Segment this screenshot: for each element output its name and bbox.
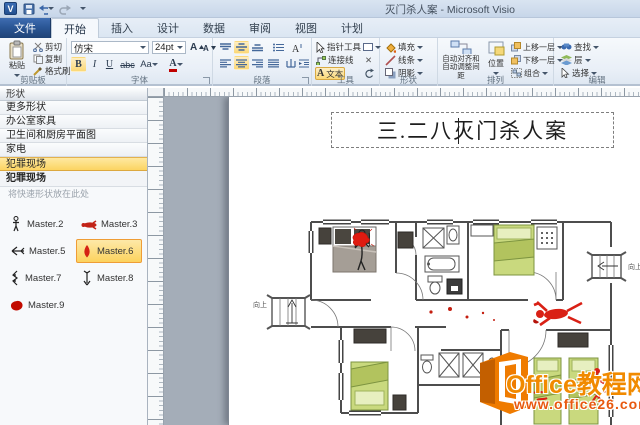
- shrink-font-icon: A: [203, 44, 209, 53]
- stencil-appliances[interactable]: 家电: [0, 143, 147, 157]
- tab-data[interactable]: 数据: [191, 18, 237, 38]
- chevron-down-icon: [80, 7, 86, 13]
- align-right-icon: [252, 59, 263, 68]
- master-7[interactable]: Master.7: [4, 266, 70, 290]
- bold-button[interactable]: B: [71, 57, 86, 72]
- layers-button[interactable]: 层: [560, 54, 592, 66]
- copy-label: 复制: [45, 53, 62, 65]
- connector-tool-label: 连接线: [328, 54, 354, 66]
- master-6[interactable]: Master.6: [76, 239, 142, 263]
- fill-button[interactable]: 填充: [384, 41, 424, 53]
- underline-button[interactable]: U: [103, 57, 116, 72]
- quick-shapes-hint: 将快速形状放在此处: [0, 187, 147, 202]
- master-9[interactable]: Master.9: [4, 293, 70, 317]
- bedroom-topright[interactable]: [471, 225, 557, 275]
- staircase-right[interactable]: 向上: [587, 252, 640, 281]
- send-backward-icon: [511, 55, 521, 65]
- group-shape: 填充 线条 阴影 形状: [380, 38, 438, 86]
- align-top-button[interactable]: [218, 41, 233, 54]
- chevron-down-icon: [593, 46, 599, 52]
- layers-icon: [561, 55, 572, 65]
- save-icon: [23, 3, 35, 15]
- font-family-combo[interactable]: 仿宋: [71, 41, 149, 54]
- fill-label: 填充: [398, 41, 415, 53]
- send-backward-label: 下移一层: [523, 55, 555, 66]
- svg-text:A: A: [292, 44, 300, 53]
- stencil-crime-scene[interactable]: 犯罪现场: [0, 157, 147, 171]
- master-5[interactable]: Master.5: [4, 239, 70, 263]
- bring-forward-label: 上移一层: [523, 42, 555, 53]
- master-label: Master.7: [25, 273, 61, 284]
- cabinet[interactable]: [398, 232, 413, 248]
- tab-file[interactable]: 文件: [0, 18, 51, 38]
- chevron-down-icon: [177, 46, 183, 52]
- chevron-down-icon: [152, 63, 158, 69]
- vertical-ruler[interactable]: [148, 97, 164, 425]
- redo-button[interactable]: [57, 1, 72, 16]
- superscript-button[interactable]: A: [290, 41, 305, 54]
- auto-align-button[interactable]: 自动对齐和 自动调整间距: [439, 40, 483, 80]
- master-8[interactable]: Master.8: [76, 266, 142, 290]
- undo-button[interactable]: [39, 1, 54, 16]
- horizontal-ruler[interactable]: [164, 88, 640, 97]
- arrow-down-icon: [81, 270, 93, 286]
- text-caret: [458, 118, 459, 144]
- window-title: 灭门杀人案 - Microsoft Visio: [330, 0, 570, 18]
- align-center-button[interactable]: [234, 56, 249, 70]
- bring-forward-icon: [511, 42, 521, 52]
- qat-customize-button[interactable]: [75, 1, 90, 16]
- change-case-button[interactable]: Aa: [139, 57, 159, 72]
- copy-icon: [33, 54, 43, 64]
- line-label: 线条: [398, 54, 415, 66]
- justify-button[interactable]: [266, 56, 281, 70]
- line-button[interactable]: 线条: [384, 54, 424, 66]
- staircase-left[interactable]: 向上: [253, 295, 310, 329]
- find-button[interactable]: 查找: [560, 41, 600, 53]
- redo-icon: [58, 3, 71, 15]
- connector-tool-icon: [316, 55, 326, 65]
- strikethrough-button[interactable]: abc: [118, 57, 137, 72]
- floor-plan[interactable]: 向上 向上: [231, 195, 640, 425]
- stool[interactable]: [393, 395, 406, 410]
- cut-label: 剪切: [45, 41, 62, 53]
- paste-button[interactable]: 粘贴: [3, 40, 31, 80]
- tab-view[interactable]: 视图: [283, 18, 329, 38]
- save-button[interactable]: [21, 1, 36, 16]
- cut-button[interactable]: 剪切: [32, 41, 63, 53]
- bathroom-bottom[interactable]: [421, 353, 496, 377]
- drawing-page[interactable]: 三.二八灭门杀人案: [228, 97, 640, 425]
- single-bed-2[interactable]: [569, 358, 598, 424]
- masters-list: Master.2 Master.3 Master.5 Master.6 Mast…: [0, 202, 147, 211]
- align-bottom-icon: [252, 43, 263, 52]
- text-direction-icon: [286, 58, 296, 68]
- shapes-panel-header: 形状: [0, 88, 147, 101]
- master-label: Master.2: [27, 219, 63, 230]
- dresser[interactable]: [354, 329, 386, 343]
- bed-green-bl[interactable]: [351, 362, 388, 410]
- chevron-down-icon: [417, 59, 423, 65]
- font-size-value: 24pt: [155, 42, 174, 53]
- align-right-button[interactable]: [250, 56, 265, 70]
- position-label: 位置: [488, 58, 504, 69]
- text-direction-button[interactable]: [285, 56, 297, 70]
- shape-group-label: 形状: [380, 75, 437, 85]
- master-label: Master.9: [28, 300, 64, 311]
- stencil-section-title: 犯罪现场: [0, 171, 147, 187]
- pointer-tool-button[interactable]: 指针工具: [315, 41, 362, 53]
- position-icon: [487, 40, 505, 56]
- font-family-value: 仿宋: [74, 41, 93, 55]
- copy-button[interactable]: 复制: [32, 53, 63, 65]
- change-case-label: Aa: [140, 59, 152, 70]
- editing-group-label: 编辑: [554, 75, 640, 85]
- toilet[interactable]: [428, 276, 442, 294]
- blood-drop-icon: [81, 244, 93, 259]
- tab-review[interactable]: 审阅: [237, 18, 283, 38]
- master-2[interactable]: Master.2: [4, 212, 70, 236]
- tab-plan[interactable]: 计划: [329, 18, 375, 38]
- pointer-tool-icon: [316, 42, 325, 53]
- visio-app-button[interactable]: V: [3, 1, 18, 16]
- font-color-label: A: [169, 58, 176, 72]
- connector-tool-button[interactable]: 连接线: [315, 54, 355, 66]
- chevron-down-icon: [140, 46, 146, 52]
- tv-cabinet[interactable]: [558, 333, 588, 347]
- page-title-text: 三.二八灭门杀人案: [377, 115, 568, 145]
- group-clipboard: 粘贴 剪切 复制 格式刷 剪贴板: [0, 38, 67, 86]
- chevron-down-icon: [177, 63, 183, 69]
- line-icon: [385, 55, 396, 66]
- stencil-office-furniture[interactable]: 办公室家具: [0, 115, 147, 129]
- ribbon-tab-row: 文件 开始 插入 设计 数据 审阅 视图 计划: [0, 18, 640, 38]
- blood-trail[interactable]: [429, 307, 495, 321]
- font-group-label: 字体: [67, 75, 212, 85]
- paragraph-group-label: 段落: [213, 75, 311, 85]
- ruler-corner: [148, 88, 164, 97]
- align-top-icon: [220, 43, 231, 52]
- shelf[interactable]: [471, 225, 493, 236]
- italic-button[interactable]: I: [88, 57, 101, 72]
- font-size-combo[interactable]: 24pt: [152, 41, 186, 54]
- stencil-bath-kitchen-plan[interactable]: 卫生间和厨房平面图: [0, 129, 147, 143]
- master-label: Master.3: [101, 219, 137, 230]
- arrange-group-label: 排列: [438, 75, 553, 85]
- align-middle-button[interactable]: [234, 41, 249, 54]
- zigzag-icon: [9, 270, 21, 286]
- drawing-canvas-area: 三.二八灭门杀人案: [148, 88, 640, 425]
- superscript-icon: A: [292, 43, 303, 53]
- undo-icon: [39, 3, 48, 15]
- title-bar: V 灭门杀人案 - Microsoft Visio: [0, 0, 640, 18]
- up-label-left: 向上: [253, 300, 267, 309]
- blood-pool-icon: [9, 298, 24, 312]
- paste-label: 粘贴: [9, 60, 25, 71]
- master-label: Master.5: [29, 246, 65, 257]
- bathroom-top[interactable]: [423, 226, 462, 294]
- align-center-icon: [236, 59, 247, 68]
- page-title-textbox[interactable]: 三.二八灭门杀人案: [331, 112, 614, 148]
- auto-align-icon: [450, 40, 472, 54]
- nightstand[interactable]: [319, 228, 331, 244]
- visio-logo-icon: V: [4, 2, 17, 15]
- bullets-icon: [273, 43, 284, 52]
- rectangle-tool-button[interactable]: [362, 41, 382, 53]
- rectangle-tool-icon: [363, 43, 373, 51]
- find-icon: [561, 42, 572, 52]
- align-left-button[interactable]: [218, 56, 233, 70]
- align-bottom-button[interactable]: [250, 41, 265, 54]
- tab-design[interactable]: 设计: [145, 18, 191, 38]
- decrease-indent-button[interactable]: [298, 56, 310, 70]
- bed-green-large[interactable]: [494, 225, 534, 275]
- grow-font-icon: A: [190, 42, 197, 53]
- connection-point-button[interactable]: ✕: [364, 54, 373, 66]
- dotted-table[interactable]: [537, 227, 557, 249]
- tab-insert[interactable]: 插入: [99, 18, 145, 38]
- position-button[interactable]: 位置: [484, 40, 508, 80]
- ribbon: 粘贴 剪切 复制 格式刷 剪贴板 仿宋 24pt A A: [0, 38, 640, 86]
- chevron-down-icon: [585, 59, 591, 65]
- bullets-button[interactable]: [271, 41, 286, 54]
- tab-home[interactable]: 开始: [51, 18, 99, 38]
- pasteboard: 三.二八灭门杀人案: [164, 97, 640, 425]
- tools-group-label: 工具: [312, 75, 379, 85]
- bedroom-bottomright[interactable]: [534, 333, 607, 424]
- bedroom-bottomleft[interactable]: [351, 329, 406, 410]
- master-label: Master.6: [97, 246, 133, 257]
- justify-icon: [268, 59, 279, 68]
- align-middle-icon: [236, 43, 247, 52]
- sink-2[interactable]: [488, 358, 496, 372]
- cut-icon: [33, 42, 43, 52]
- hallway-victim[interactable]: [533, 302, 582, 325]
- connection-point-icon: ✕: [365, 55, 372, 66]
- master-3[interactable]: Master.3: [76, 212, 142, 236]
- font-color-button[interactable]: A: [165, 57, 187, 72]
- group-tools: 指针工具 连接线 ✕ A 文本 工具: [312, 38, 380, 86]
- lying-body-icon: [81, 218, 97, 230]
- undo-dropdown-icon[interactable]: [48, 7, 54, 13]
- paste-icon: [7, 40, 27, 60]
- group-arrange: 自动对齐和 自动调整间距 位置 上移一层 下移一层 组合 排列: [438, 38, 554, 86]
- clipboard-group-label: 剪贴板: [0, 75, 66, 85]
- up-label-right: 向上: [628, 262, 640, 271]
- decrease-indent-icon: [299, 59, 309, 68]
- arrow-left-icon: [9, 245, 25, 257]
- shapes-panel: 形状 更多形状 办公室家具 卫生间和厨房平面图 家电 犯罪现场 犯罪现场 将快速…: [0, 88, 148, 425]
- group-font: 仿宋 24pt A A B I U abc Aa A 字体: [67, 38, 213, 86]
- bedroom-topleft[interactable]: [319, 227, 413, 272]
- group-editing: 查找 层 选择 编辑: [554, 38, 640, 86]
- fill-icon: [385, 42, 396, 53]
- group-paragraph: A 段落: [213, 38, 312, 86]
- pointer-tool-label: 指针工具: [327, 41, 361, 53]
- find-label: 查找: [574, 41, 591, 53]
- align-left-icon: [220, 59, 231, 68]
- stencil-more-shapes[interactable]: 更多形状: [0, 101, 147, 115]
- toilet-2[interactable]: [421, 355, 433, 373]
- standing-figure-icon: [9, 216, 23, 232]
- layers-label: 层: [574, 54, 583, 66]
- chevron-down-icon: [417, 46, 423, 52]
- master-label: Master.8: [97, 273, 133, 284]
